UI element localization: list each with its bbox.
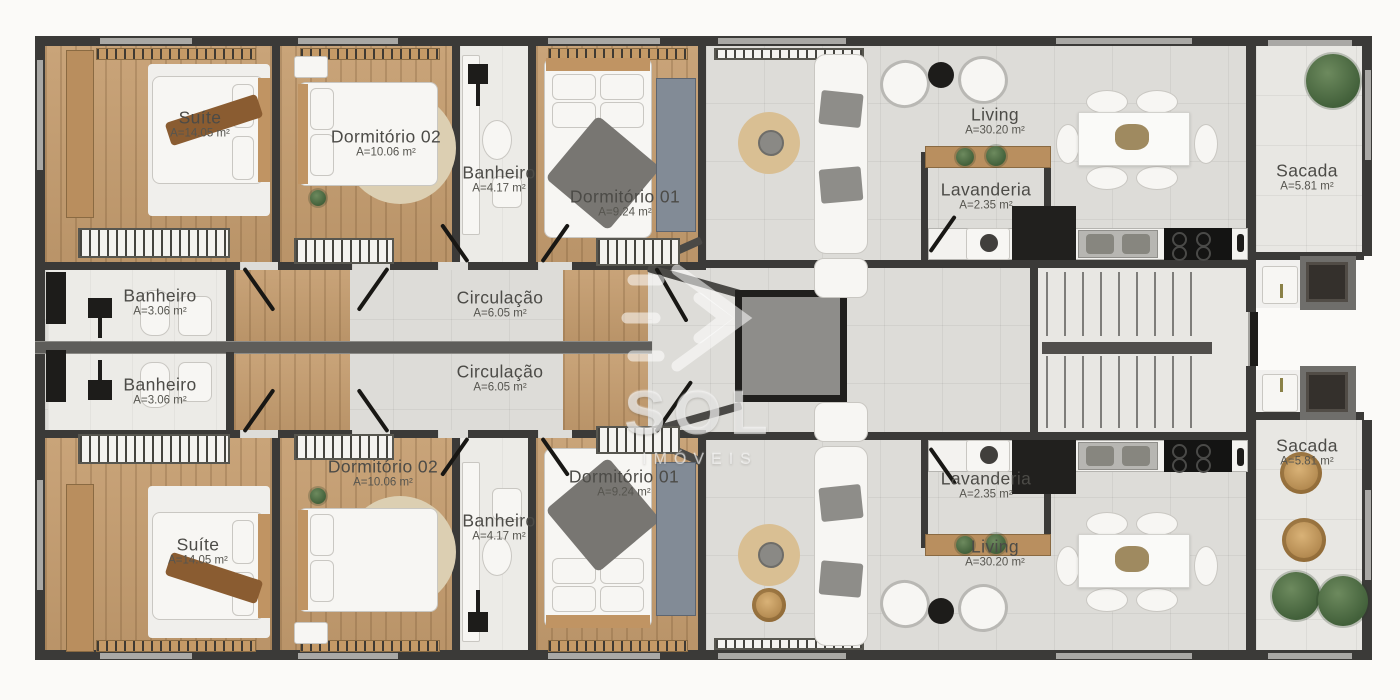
window <box>1268 653 1352 659</box>
room-name: Banheiro <box>123 374 196 394</box>
dorm1-top-closet <box>596 238 680 266</box>
sofa-cushion <box>819 166 864 204</box>
shower-head <box>88 298 112 318</box>
burner <box>1196 232 1211 247</box>
room-area: A=9.24 m² <box>570 206 680 219</box>
room-area: A=2.35 m² <box>941 199 1032 212</box>
room-name: Banheiro <box>462 510 535 530</box>
side-table <box>928 62 954 88</box>
floor-plan: SuíteA=14.05 m² Dormitório 02A=10.06 m² … <box>0 0 1400 700</box>
room-label-living-top: LivingA=30.20 m² <box>965 104 1025 137</box>
wall-living-south-top <box>706 260 1253 268</box>
room-area: A=10.06 m² <box>331 146 441 159</box>
wall-lavanderia-left-bottom <box>921 438 928 548</box>
room-label-sacada-top: SacadaA=5.81 m² <box>1276 160 1338 193</box>
room-name: Dormitório 02 <box>331 126 441 146</box>
window <box>548 653 660 659</box>
door-gap <box>538 262 572 270</box>
sink-bowl <box>1122 234 1150 254</box>
room-name: Circulação <box>457 361 544 381</box>
room-label-suite-bottom: SuíteA=14.05 m² <box>168 534 228 567</box>
elevator-shaft <box>735 290 847 402</box>
plant <box>1272 572 1320 620</box>
coffee-table <box>758 542 784 568</box>
dining-chair <box>1136 166 1178 190</box>
dorm2-bottom-nightstand <box>294 622 328 644</box>
room-name: Circulação <box>457 287 544 307</box>
dorm2-top-nightstand <box>294 56 328 78</box>
shaft <box>46 350 66 402</box>
room-label-circulacao-bottom: CirculaçãoA=6.05 m² <box>457 361 544 394</box>
shower-head <box>468 64 488 84</box>
wall-east-lower <box>1246 366 1256 650</box>
sink-bowl <box>1086 446 1114 466</box>
room-label-dormitorio-01-top: Dormitório 01A=9.24 m² <box>570 186 680 219</box>
room-label-lavanderia-top: LavanderiaA=2.35 m² <box>941 179 1032 212</box>
dining-chair <box>1056 124 1080 164</box>
room-area: A=3.06 m² <box>123 394 196 407</box>
burner <box>1196 444 1211 459</box>
window <box>1365 490 1371 580</box>
wall-east-upper <box>1246 36 1256 312</box>
room-area: A=14.05 m² <box>168 554 228 567</box>
room-area: A=6.05 m² <box>457 307 544 320</box>
room-label-dormitorio-01-bottom: Dormitório 01A=9.24 m² <box>569 466 679 499</box>
wall-lavanderia-left-top <box>921 152 928 262</box>
burner <box>1196 458 1211 473</box>
door-gap <box>438 262 468 270</box>
sofa-chaise <box>814 258 868 298</box>
room-area: A=4.17 m² <box>462 530 535 543</box>
burner <box>1172 458 1187 473</box>
table-centerpiece <box>1115 546 1149 572</box>
room-label-banheiro-top: BanheiroA=4.17 m² <box>462 162 535 195</box>
burner <box>1172 444 1187 459</box>
room-name: Sacada <box>1276 435 1338 455</box>
washing-machine-door <box>980 234 998 252</box>
dorm2-bottom-headboard <box>298 510 308 610</box>
room-name: Banheiro <box>123 285 196 305</box>
burner <box>1172 232 1187 247</box>
room-area: A=3.06 m² <box>123 305 196 318</box>
closet-rail <box>548 640 688 652</box>
window <box>298 653 398 659</box>
room-name: Banheiro <box>462 162 535 182</box>
room-label-banheiro-bottom: BanheiroA=4.17 m² <box>462 510 535 543</box>
shower-arm <box>476 84 480 106</box>
plant <box>1318 576 1368 626</box>
room-label-dormitorio-02-bottom: Dormitório 02A=10.06 m² <box>328 456 438 489</box>
dining-chair <box>1086 588 1128 612</box>
room-area: A=6.05 m² <box>457 381 544 394</box>
dining-chair <box>1194 124 1218 164</box>
room-label-sacada-bottom: SacadaA=5.81 m² <box>1276 435 1338 468</box>
plant <box>1306 54 1360 108</box>
wall-suite-dorm2-top <box>272 46 280 262</box>
shaft <box>46 272 66 324</box>
shower-head <box>88 380 112 400</box>
stair-flight-lower <box>1046 354 1204 428</box>
room-area: A=9.24 m² <box>569 486 679 499</box>
room-name: Suíte <box>170 107 230 127</box>
room-area: A=14.05 m² <box>170 127 230 140</box>
sofa-cushion <box>818 90 863 128</box>
pouf <box>752 588 786 622</box>
room-label-banheiro-social-top: BanheiroA=3.06 m² <box>123 285 196 318</box>
pillow <box>552 74 596 100</box>
room-name: Lavanderia <box>941 468 1032 488</box>
dining-chair <box>1086 90 1128 114</box>
wall-banheiro-dorm1-bottom <box>528 438 536 652</box>
shower-head <box>468 612 488 632</box>
grill <box>1306 262 1348 302</box>
pillow <box>552 586 596 612</box>
closet-rail <box>96 48 256 60</box>
dorm2-top-closet <box>294 238 394 264</box>
room-name: Sacada <box>1276 160 1338 180</box>
room-label-banheiro-social-bottom: BanheiroA=3.06 m² <box>123 374 196 407</box>
dorm1-bottom-closet <box>596 426 680 454</box>
shower-arm <box>98 360 102 380</box>
room-label-dormitorio-02-top: Dormitório 02A=10.06 m² <box>331 126 441 159</box>
room-area: A=5.81 m² <box>1276 455 1338 468</box>
window <box>548 38 660 44</box>
suite-top-closet <box>78 228 230 258</box>
plant <box>310 190 326 206</box>
window <box>37 480 43 590</box>
dorm1-top-headboard <box>546 58 650 71</box>
plant <box>986 146 1006 166</box>
grill <box>1306 372 1348 412</box>
wall-living-north-bottom <box>706 432 1253 440</box>
room-area: A=10.06 m² <box>328 476 438 489</box>
entry-wood-top <box>563 268 648 341</box>
wall-central-divider <box>35 341 652 354</box>
room-name: Suíte <box>168 534 228 554</box>
dining-chair <box>1194 546 1218 586</box>
pillow <box>310 514 334 556</box>
room-area: A=4.17 m² <box>462 182 535 195</box>
room-name: Living <box>965 104 1025 124</box>
entry-wood-bottom <box>563 352 648 430</box>
wall-recess-stub <box>1250 312 1258 366</box>
wall-stairs-west <box>1030 268 1038 432</box>
window <box>718 653 846 659</box>
pillow <box>232 136 254 180</box>
room-name: Living <box>965 536 1025 556</box>
closet-rail <box>96 640 256 652</box>
window <box>718 38 846 44</box>
sink-bowl <box>1086 234 1114 254</box>
room-area: A=30.20 m² <box>965 124 1025 137</box>
wall-suite-dorm2-bottom <box>272 438 280 652</box>
room-label-suite-top: SuíteA=14.05 m² <box>170 107 230 140</box>
coffee-table <box>758 130 784 156</box>
suite-top-headboard <box>258 78 270 182</box>
suite-bottom-wardrobe <box>66 484 94 652</box>
room-name: Dormitório 02 <box>328 456 438 476</box>
wicker-chair <box>1282 518 1326 562</box>
room-area: A=2.35 m² <box>941 488 1032 501</box>
sofa-chaise <box>814 402 868 442</box>
window <box>1056 38 1192 44</box>
dining-chair <box>1056 546 1080 586</box>
dining-chair <box>1086 166 1128 190</box>
room-name: Dormitório 01 <box>569 466 679 486</box>
dining-chair <box>1136 512 1178 536</box>
window <box>100 38 192 44</box>
pillow <box>600 586 644 612</box>
sofa <box>814 54 868 254</box>
plant <box>956 148 974 166</box>
shower-arm <box>476 590 480 612</box>
window <box>37 60 43 170</box>
wall-banheiro-social-top <box>226 268 234 342</box>
window <box>1056 653 1192 659</box>
table-centerpiece <box>1115 124 1149 150</box>
sofa-cushion <box>819 560 864 598</box>
room-area: A=5.81 m² <box>1276 180 1338 193</box>
room-name: Lavanderia <box>941 179 1032 199</box>
pillow <box>600 74 644 100</box>
sofa-cushion <box>818 484 863 522</box>
burner <box>1172 246 1187 261</box>
toilet <box>482 120 512 160</box>
plant <box>310 488 326 504</box>
kitchen-faucet <box>1237 234 1244 252</box>
stair-flight-upper <box>1046 272 1204 336</box>
window <box>1365 70 1371 160</box>
suite-top-wardrobe <box>66 50 94 218</box>
kitchen-faucet <box>1237 448 1244 466</box>
appliance-tower <box>1012 206 1076 260</box>
room-label-circulacao-top: CirculaçãoA=6.05 m² <box>457 287 544 320</box>
suite-bottom-headboard <box>258 514 270 618</box>
burner <box>1196 246 1211 261</box>
window <box>100 653 192 659</box>
washing-machine-door <box>980 446 998 464</box>
suite-bottom-closet <box>78 434 230 464</box>
stair-center-rail <box>1042 340 1212 356</box>
dining-chair <box>1086 512 1128 536</box>
pillow <box>232 520 254 564</box>
alcove-faucet <box>1280 284 1283 298</box>
window <box>1268 40 1352 46</box>
dorm1-bottom-headboard <box>546 615 650 628</box>
room-area: A=30.20 m² <box>965 556 1025 569</box>
dining-chair <box>1136 90 1178 114</box>
side-table <box>928 598 954 624</box>
wall-banheiro-dorm1-top <box>528 46 536 262</box>
pillow <box>310 560 334 602</box>
door-gap <box>438 430 468 438</box>
sink-bowl <box>1122 446 1150 466</box>
room-label-living-bottom: LivingA=30.20 m² <box>965 536 1025 569</box>
wall-banheiro-social-bottom <box>226 352 234 430</box>
shower-arm <box>98 318 102 338</box>
pillow <box>310 88 334 130</box>
sofa <box>814 446 868 646</box>
room-name: Dormitório 01 <box>570 186 680 206</box>
window <box>298 38 398 44</box>
dining-chair <box>1136 588 1178 612</box>
alcove-faucet <box>1280 378 1283 392</box>
dorm2-top-headboard <box>298 84 308 184</box>
room-label-lavanderia-bottom: LavanderiaA=2.35 m² <box>941 468 1032 501</box>
